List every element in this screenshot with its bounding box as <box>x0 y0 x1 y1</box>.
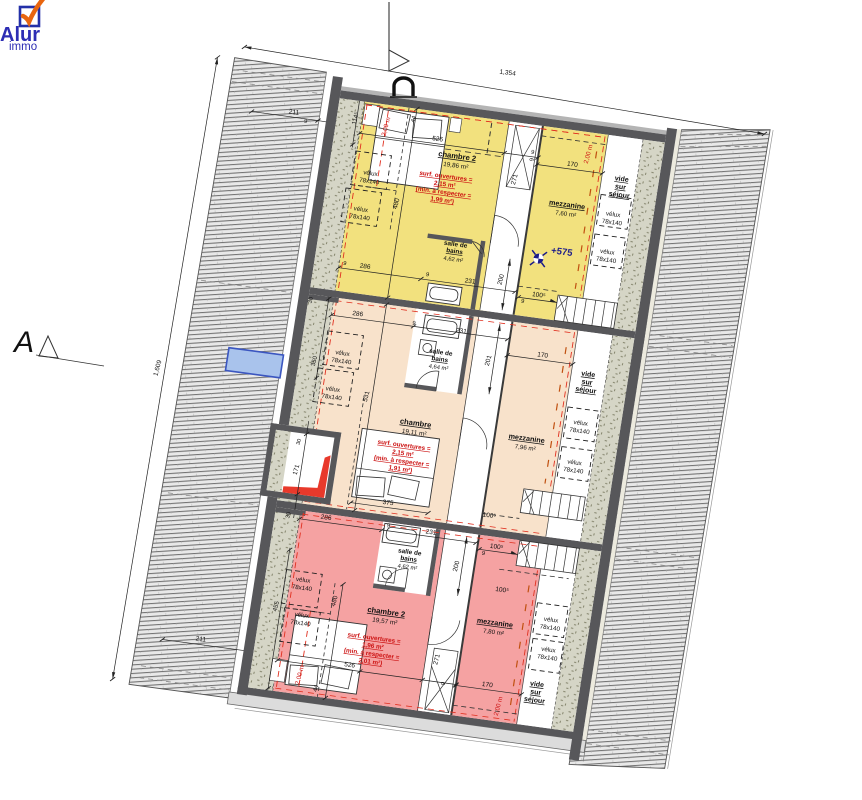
svg-text:211: 211 <box>195 635 207 643</box>
svg-text:sur: sur <box>530 689 542 697</box>
svg-text:A: A <box>12 326 34 359</box>
svg-text:211: 211 <box>288 109 300 117</box>
svg-text:immo: immo <box>9 41 37 53</box>
svg-text:sur: sur <box>614 183 626 191</box>
svg-text:sur: sur <box>581 379 593 387</box>
